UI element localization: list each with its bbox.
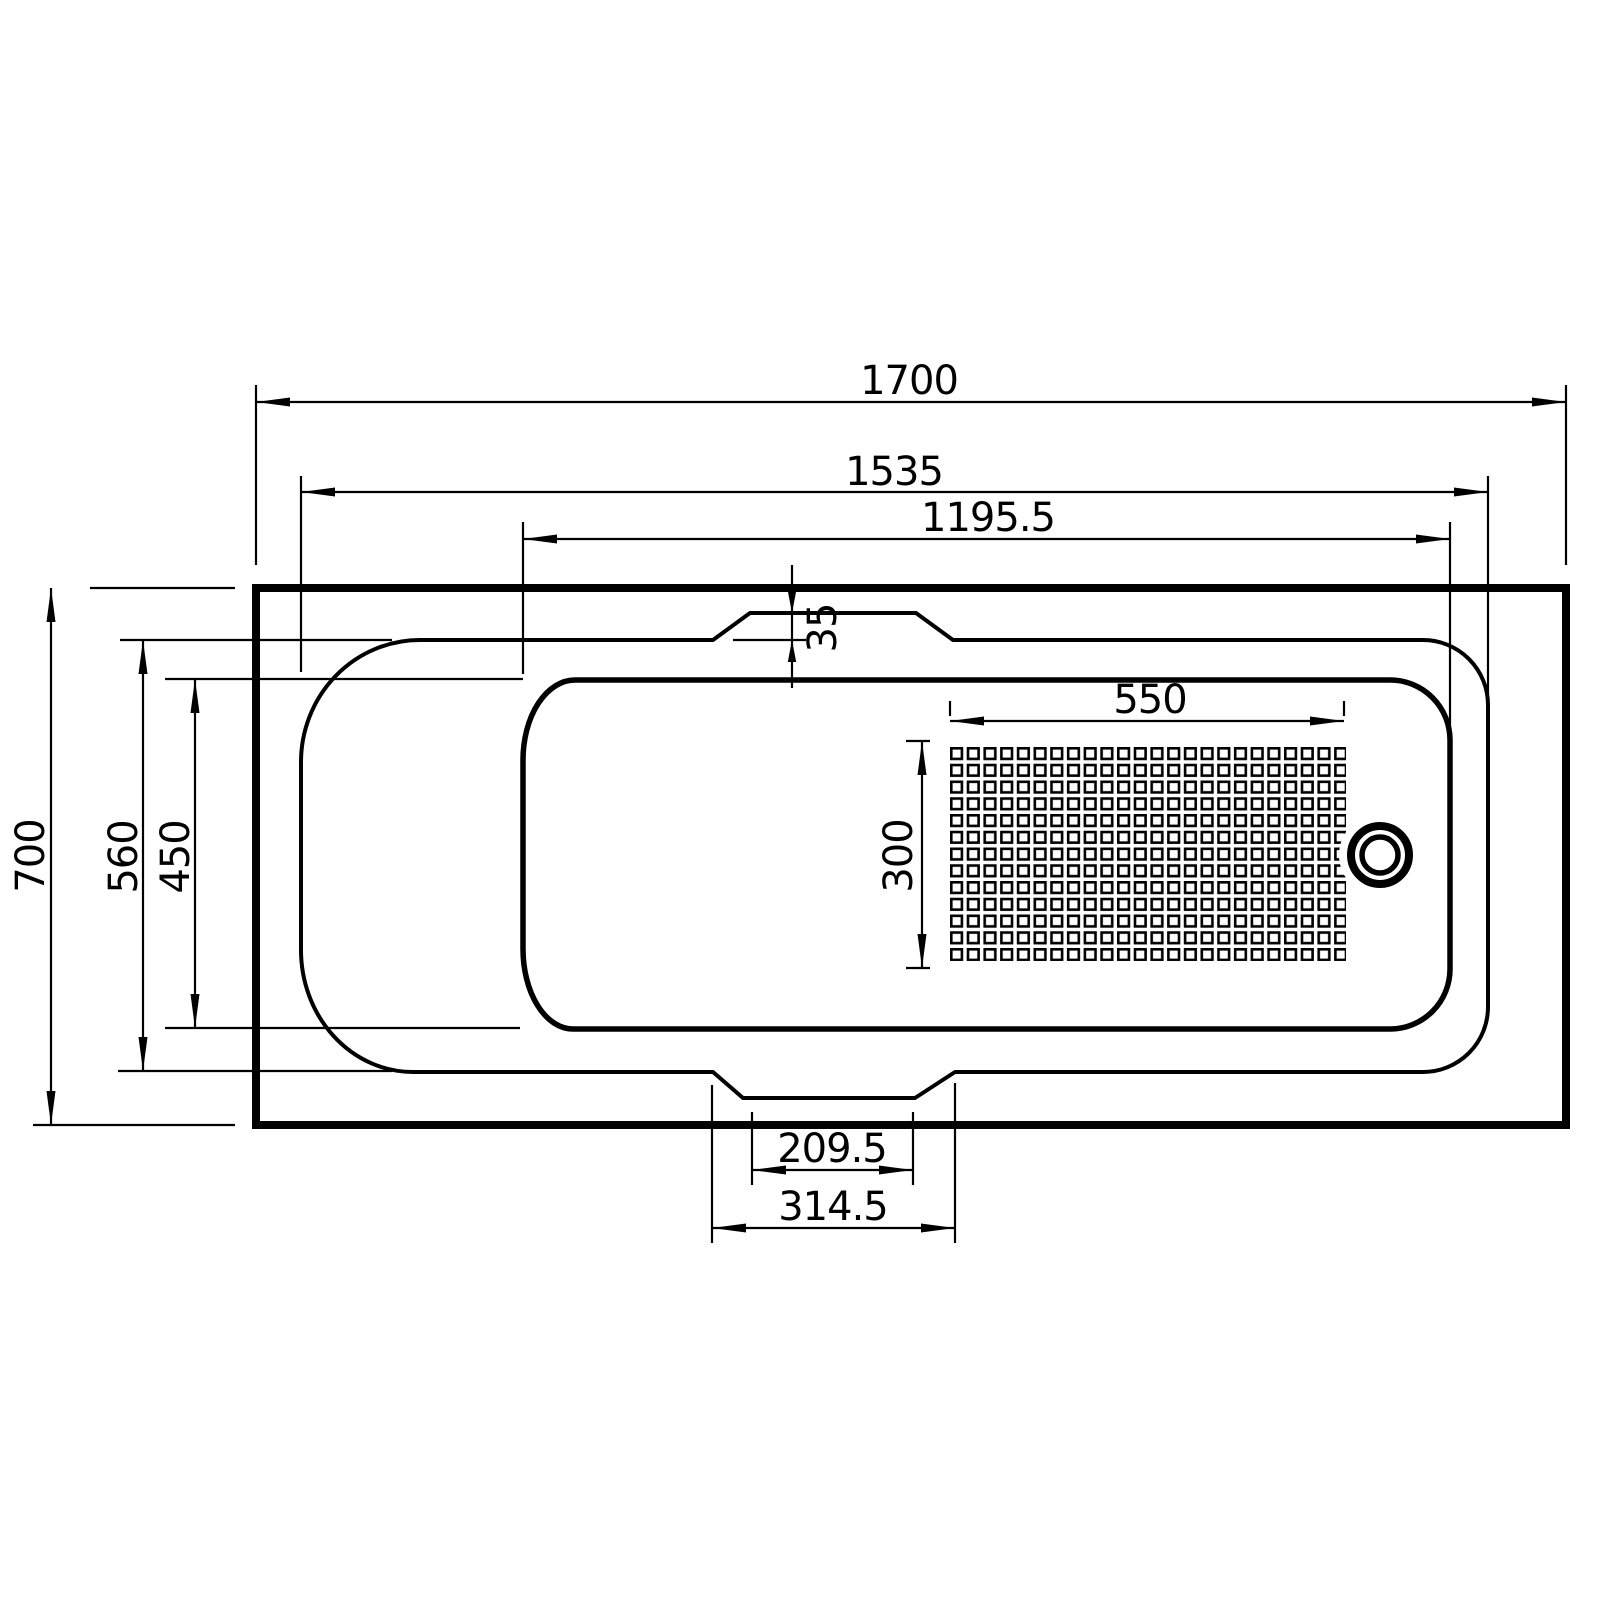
- arrow-left-icon: [712, 1224, 746, 1233]
- arrow-up-icon: [139, 640, 148, 674]
- dimension-grip-width: 300: [876, 741, 930, 968]
- arrow-right-icon: [921, 1224, 955, 1233]
- arrow-left-icon: [950, 717, 984, 726]
- arrow-down-icon: [139, 1037, 148, 1071]
- arrow-left-icon: [256, 398, 290, 407]
- dim-label-overall-width: 700: [8, 819, 54, 892]
- dim-label-deck-length: 1535: [845, 449, 943, 495]
- arrow-right-icon: [1310, 717, 1344, 726]
- arrow-left-icon: [523, 535, 557, 544]
- arrow-up-icon: [47, 588, 56, 622]
- dimension-basin-width: 450: [153, 679, 523, 1028]
- dim-label-rim-step: 35: [800, 604, 846, 653]
- dim-label-basin-length: 1195.5: [921, 495, 1055, 541]
- arrow-right-icon: [1532, 398, 1566, 407]
- dimension-rim-step: 35: [733, 565, 846, 688]
- dim-label-grip-width: 300: [876, 819, 922, 892]
- arrow-right-icon: [1454, 488, 1488, 497]
- arrow-up-icon: [788, 640, 796, 662]
- bathtub-technical-drawing: 1700 1535 1195.5 35 550: [0, 0, 1600, 1600]
- arrow-down-icon: [918, 934, 927, 968]
- arrow-up-icon: [191, 679, 200, 713]
- arrow-left-icon: [301, 488, 335, 497]
- dim-label-overall-length: 1700: [860, 358, 958, 404]
- dimension-deck-width: 560: [101, 640, 392, 1071]
- drain: [1339, 814, 1421, 896]
- dimension-grip-length: 550: [950, 677, 1344, 726]
- arrow-right-icon: [1416, 535, 1450, 544]
- anti-slip-grid: [950, 747, 1346, 961]
- dim-label-deck-width: 560: [101, 820, 147, 893]
- dim-label-foot-notch-inner: 209.5: [777, 1126, 887, 1172]
- arrow-down-icon: [788, 591, 796, 613]
- arrow-down-icon: [191, 994, 200, 1028]
- arrow-up-icon: [918, 741, 927, 775]
- dim-label-basin-width: 450: [153, 820, 199, 893]
- dim-label-grip-length: 550: [1113, 677, 1186, 723]
- arrow-down-icon: [47, 1091, 56, 1125]
- dim-label-foot-notch-outer: 314.5: [778, 1184, 888, 1230]
